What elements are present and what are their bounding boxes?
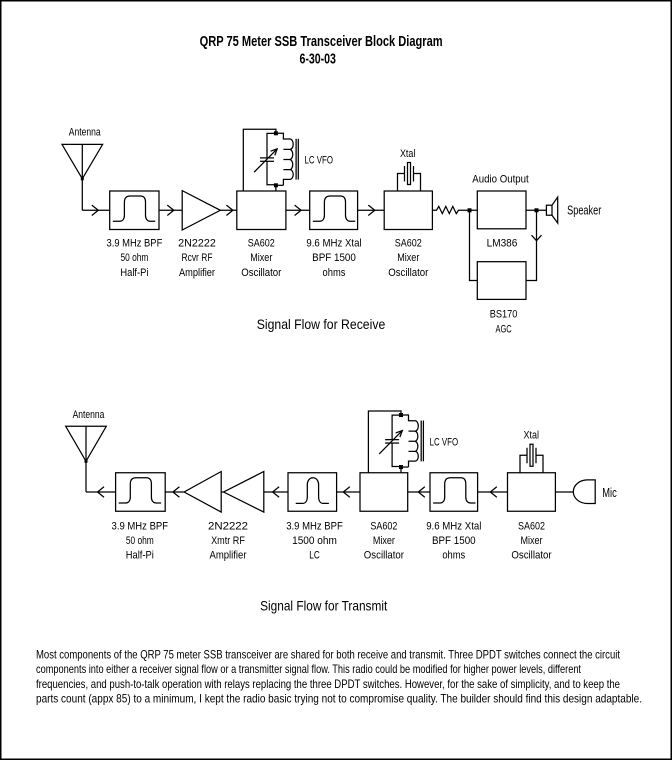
svg-text:LC VFO: LC VFO [430,436,459,448]
svg-text:Oscillator: Oscillator [388,267,428,279]
svg-text:Audio Output: Audio Output [472,174,528,186]
svg-text:AGC: AGC [496,323,512,335]
svg-text:Mixer: Mixer [397,252,419,264]
svg-text:Xtal: Xtal [524,430,540,442]
svg-text:Most components of the QRP 75: Most components of the QRP 75 meter SSB … [36,648,621,662]
svg-text:3.9 MHz BPF: 3.9 MHz BPF [112,520,169,532]
svg-text:SA602: SA602 [248,238,275,250]
svg-text:LM386: LM386 [487,238,518,250]
svg-text:ohms: ohms [323,267,346,279]
svg-text:Signal Flow for Transmit: Signal Flow for Transmit [260,598,387,614]
svg-text:Oscillator: Oscillator [511,550,551,562]
svg-text:2N2222: 2N2222 [208,520,248,532]
svg-text:LC: LC [309,550,320,562]
svg-text:Amplifier: Amplifier [179,267,215,279]
svg-text:3.9 MHz BPF: 3.9 MHz BPF [286,520,343,532]
svg-text:50 ohm: 50 ohm [126,535,154,547]
svg-text:Mixer: Mixer [250,252,272,264]
svg-text:Oscillator: Oscillator [241,267,281,279]
svg-text:Antenna: Antenna [73,409,105,421]
svg-text:Xmtr RF: Xmtr RF [211,535,245,547]
svg-text:frequencies, and push-to-talk: frequencies, and push-to-talk operation … [36,677,620,691]
svg-text:parts count (appx 85) to a min: parts count (appx 85) to a minimum, I ke… [36,692,642,706]
svg-text:1500 ohm: 1500 ohm [292,535,337,547]
svg-text:9.6 MHz Xtal: 9.6 MHz Xtal [426,520,481,532]
svg-text:BPF 1500: BPF 1500 [312,252,356,264]
svg-text:Speaker: Speaker [567,203,601,217]
svg-text:SA602: SA602 [518,520,545,532]
svg-text:Amplifier: Amplifier [210,550,247,562]
svg-text:ohms: ohms [442,550,465,562]
svg-text:2N2222: 2N2222 [178,238,216,250]
svg-text:QRP 75 Meter SSB Transceiver B: QRP 75 Meter SSB Transceiver Block Diagr… [200,34,443,50]
svg-text:Antenna: Antenna [69,127,101,139]
svg-text:BPF 1500: BPF 1500 [432,535,476,547]
svg-text:components into either a recei: components into either a receiver signal… [36,662,582,676]
svg-text:50 ohm: 50 ohm [120,252,148,264]
svg-text:Mixer: Mixer [373,535,395,547]
svg-text:Half-Pi: Half-Pi [120,267,148,279]
svg-text:Signal Flow for Receive: Signal Flow for Receive [257,316,386,332]
svg-text:3.9 MHz BPF: 3.9 MHz BPF [107,238,163,250]
svg-text:LC VFO: LC VFO [305,155,334,167]
svg-text:Rcvr RF: Rcvr RF [182,252,213,264]
svg-text:Oscillator: Oscillator [364,550,404,562]
svg-text:Mixer: Mixer [520,535,542,547]
svg-text:Xtal: Xtal [400,148,416,160]
svg-text:Mic: Mic [602,486,617,500]
svg-text:SA602: SA602 [395,238,422,250]
svg-text:BS170: BS170 [490,309,518,321]
svg-text:6-30-03: 6-30-03 [299,52,336,68]
svg-text:9.6 MHz Xtal: 9.6 MHz Xtal [306,238,361,250]
svg-text:Half-Pi: Half-Pi [126,550,154,562]
svg-text:SA602: SA602 [370,520,397,532]
